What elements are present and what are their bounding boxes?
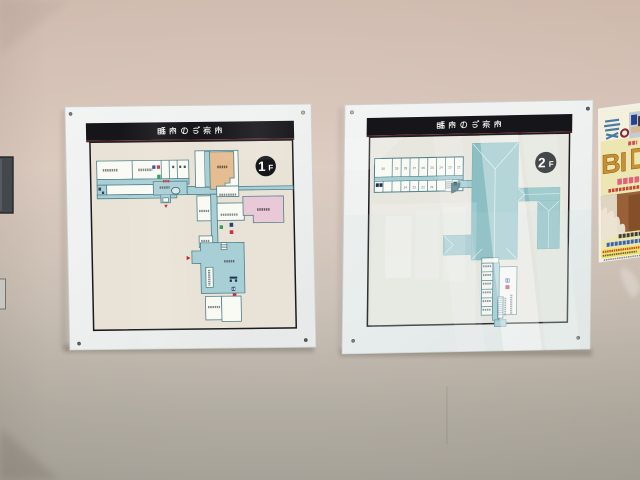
svg-text:26: 26 <box>422 166 426 170</box>
svg-text:28: 28 <box>404 166 408 170</box>
svg-text:BI: BI <box>601 146 626 180</box>
svg-text:F: F <box>268 163 273 172</box>
svg-text:27: 27 <box>413 166 417 170</box>
svg-text:1: 1 <box>258 159 266 174</box>
svg-text:30: 30 <box>382 167 386 171</box>
svg-text:25: 25 <box>430 166 434 170</box>
svg-text:23: 23 <box>412 185 416 189</box>
svg-text:22: 22 <box>421 185 425 189</box>
svg-text:29: 29 <box>395 166 399 170</box>
svg-text:24: 24 <box>404 186 408 190</box>
svg-text:21: 21 <box>430 185 434 189</box>
